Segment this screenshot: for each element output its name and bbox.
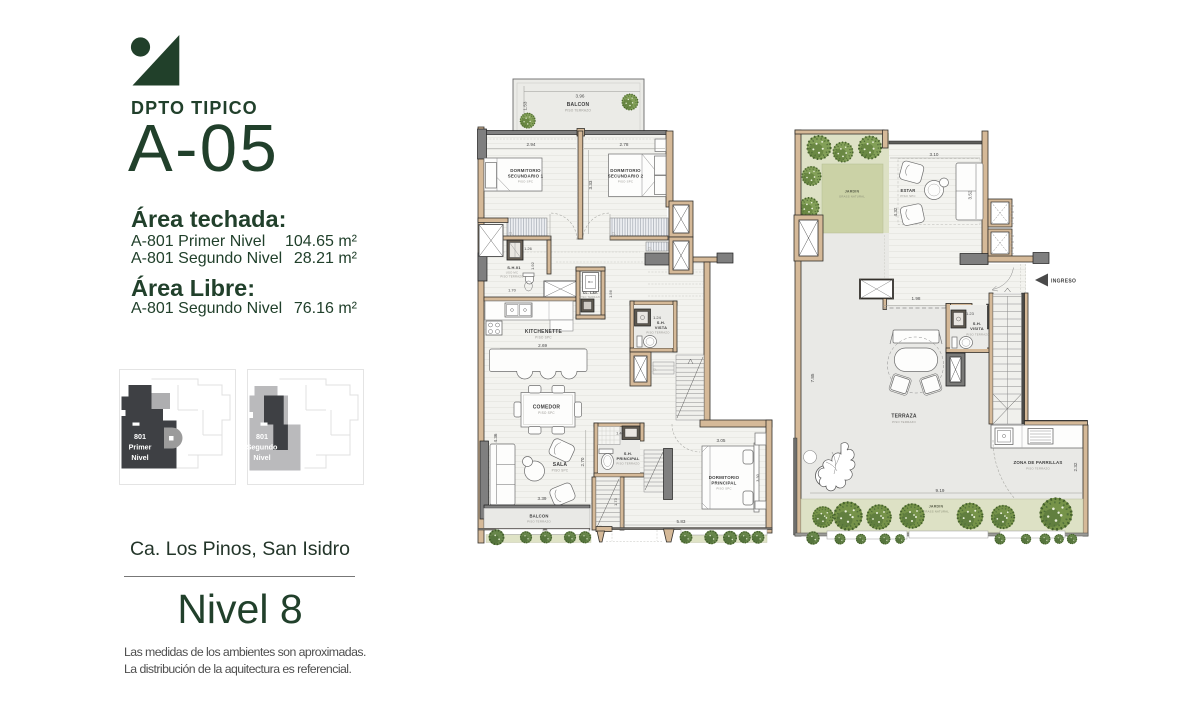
svg-text:SECUNDARIO 2: SECUNDARIO 2 — [608, 174, 644, 179]
svg-text:VISITA: VISITA — [970, 326, 984, 331]
svg-text:CL: CL — [612, 232, 617, 236]
svg-text:1.43: 1.43 — [616, 431, 625, 436]
svg-text:BO: BO — [588, 280, 593, 284]
svg-text:BALCON: BALCON — [567, 102, 590, 108]
svg-text:1.70: 1.70 — [508, 288, 517, 293]
svg-text:PISO TERRAZO: PISO TERRAZO — [646, 331, 670, 335]
svg-text:PISO TERRAZO: PISO TERRAZO — [500, 275, 524, 279]
svg-text:Nivel: Nivel — [253, 453, 270, 462]
svg-text:CL: CL — [509, 232, 514, 236]
svg-text:DORMITORIO: DORMITORIO — [610, 168, 641, 173]
svg-text:1.24: 1.24 — [653, 315, 662, 320]
svg-text:TERRAZA: TERRAZA — [891, 414, 916, 420]
svg-text:INGRESO: INGRESO — [1051, 279, 1076, 285]
svg-text:PISO SPC: PISO SPC — [535, 336, 552, 340]
svg-text:2.94: 2.94 — [527, 142, 536, 147]
svg-text:5.83: 5.83 — [677, 519, 686, 524]
svg-text:BALCON: BALCON — [529, 514, 548, 519]
svg-text:1.73: 1.73 — [613, 497, 618, 506]
svg-text:PISO TERRAZO: PISO TERRAZO — [616, 462, 640, 466]
svg-text:Segundo: Segundo — [247, 443, 278, 452]
svg-text:PISO SPC: PISO SPC — [900, 194, 915, 198]
svg-text:1.26: 1.26 — [524, 246, 533, 251]
svg-text:JARDIN: JARDIN — [929, 505, 944, 509]
svg-text:PISO SPC: PISO SPC — [518, 180, 533, 184]
svg-text:PISO TERRAZO: PISO TERRAZO — [892, 420, 916, 424]
svg-text:CL: CL — [648, 247, 653, 251]
svg-text:PISO SPC: PISO SPC — [538, 411, 555, 415]
svg-text:1.23: 1.23 — [966, 311, 975, 316]
svg-text:3.10: 3.10 — [930, 152, 939, 157]
svg-text:DORMITORIO: DORMITORIO — [709, 475, 740, 480]
svg-text:KITCHENETTE: KITCHENETTE — [525, 329, 563, 335]
svg-text:801: 801 — [256, 432, 268, 441]
svg-text:Nivel: Nivel — [131, 453, 148, 462]
svg-text:PISO SPC: PISO SPC — [618, 180, 633, 184]
svg-text:PRINCIPAL: PRINCIPAL — [616, 456, 639, 461]
svg-text:SECUNDARIO 1: SECUNDARIO 1 — [508, 174, 544, 179]
svg-text:PISO TERRAZO: PISO TERRAZO — [527, 520, 551, 524]
svg-text:3.05: 3.05 — [717, 438, 726, 443]
svg-text:4.32: 4.32 — [893, 207, 898, 216]
svg-text:1.53: 1.53 — [523, 101, 528, 110]
svg-text:1.98: 1.98 — [912, 296, 921, 301]
svg-text:2.70: 2.70 — [580, 457, 585, 466]
svg-text:9.19: 9.19 — [936, 488, 945, 493]
svg-text:7.85: 7.85 — [810, 373, 815, 382]
svg-text:CL. LAV.: CL. LAV. — [583, 291, 598, 295]
svg-text:4.36: 4.36 — [493, 433, 498, 442]
svg-text:JARDIN: JARDIN — [845, 190, 860, 194]
svg-text:PISO TERRAZO: PISO TERRAZO — [580, 295, 602, 299]
svg-text:3.30: 3.30 — [756, 474, 760, 481]
svg-text:2.78: 2.78 — [620, 142, 629, 147]
svg-text:COMEDOR: COMEDOR — [533, 405, 561, 411]
svg-text:GRASS NATURAL: GRASS NATURAL — [839, 195, 865, 199]
svg-text:VISTA: VISTA — [655, 325, 667, 330]
svg-text:ESTAR: ESTAR — [901, 188, 916, 193]
svg-text:801: 801 — [134, 432, 146, 441]
svg-text:2.32: 2.32 — [1073, 462, 1078, 471]
svg-text:3.52: 3.52 — [968, 190, 973, 199]
svg-text:PISO TERRAZO: PISO TERRAZO — [966, 333, 990, 337]
svg-text:2.69: 2.69 — [538, 343, 547, 348]
svg-text:CL: CL — [653, 368, 657, 372]
svg-text:GRASS NATURAL: GRASS NATURAL — [923, 510, 949, 514]
svg-text:SALA: SALA — [553, 462, 568, 468]
svg-text:PRINCIPAL: PRINCIPAL — [711, 481, 736, 486]
svg-text:PISO TERRAZO: PISO TERRAZO — [565, 109, 591, 113]
svg-text:PISO SPC: PISO SPC — [552, 469, 569, 473]
svg-text:3.96: 3.96 — [576, 94, 585, 99]
svg-text:1.56: 1.56 — [608, 289, 613, 298]
svg-text:S.H.01: S.H.01 — [507, 265, 521, 270]
svg-text:PISO TERRAZO: PISO TERRAZO — [1026, 467, 1050, 471]
svg-text:DORMITORIO: DORMITORIO — [510, 168, 541, 173]
svg-text:3.39: 3.39 — [538, 496, 547, 501]
svg-text:1.92: 1.92 — [530, 261, 535, 270]
svg-text:Primer: Primer — [129, 443, 152, 452]
svg-text:PISO SPC: PISO SPC — [716, 487, 731, 491]
svg-text:ZONA DE PARRILLAS: ZONA DE PARRILLAS — [1013, 460, 1062, 465]
